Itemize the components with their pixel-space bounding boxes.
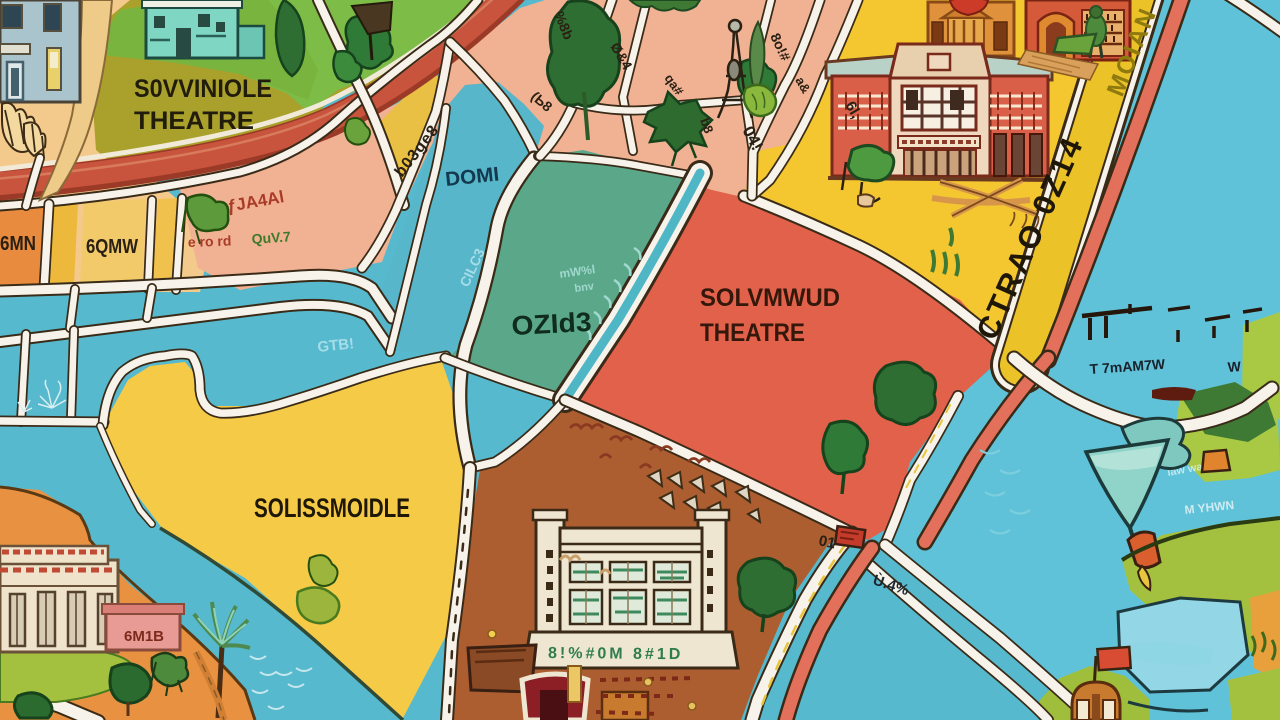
svg-text:SOLVMWUD: SOLVMWUD bbox=[700, 284, 840, 312]
svg-text:6QMW: 6QMW bbox=[86, 236, 138, 258]
svg-text:S0VVINIOLE: S0VVINIOLE bbox=[134, 75, 272, 103]
svg-text:W: W bbox=[1227, 358, 1242, 375]
svg-text:QuV.7: QuV.7 bbox=[251, 228, 291, 247]
svg-text:01: 01 bbox=[817, 532, 837, 552]
svg-text:e ro rd: e ro rd bbox=[188, 232, 232, 250]
svg-text:THEATRE: THEATRE bbox=[700, 319, 805, 347]
svg-text:8!%#0M 8#1D: 8!%#0M 8#1D bbox=[548, 645, 683, 663]
svg-text:6MN: 6MN bbox=[0, 233, 36, 255]
svg-text:SOLISSMOIDLE: SOLISSMOIDLE bbox=[254, 493, 410, 523]
svg-text:THEATRE: THEATRE bbox=[134, 107, 254, 135]
svg-text:OZId3: OZId3 bbox=[511, 307, 592, 341]
svg-text:6M1B: 6M1B bbox=[124, 628, 164, 645]
